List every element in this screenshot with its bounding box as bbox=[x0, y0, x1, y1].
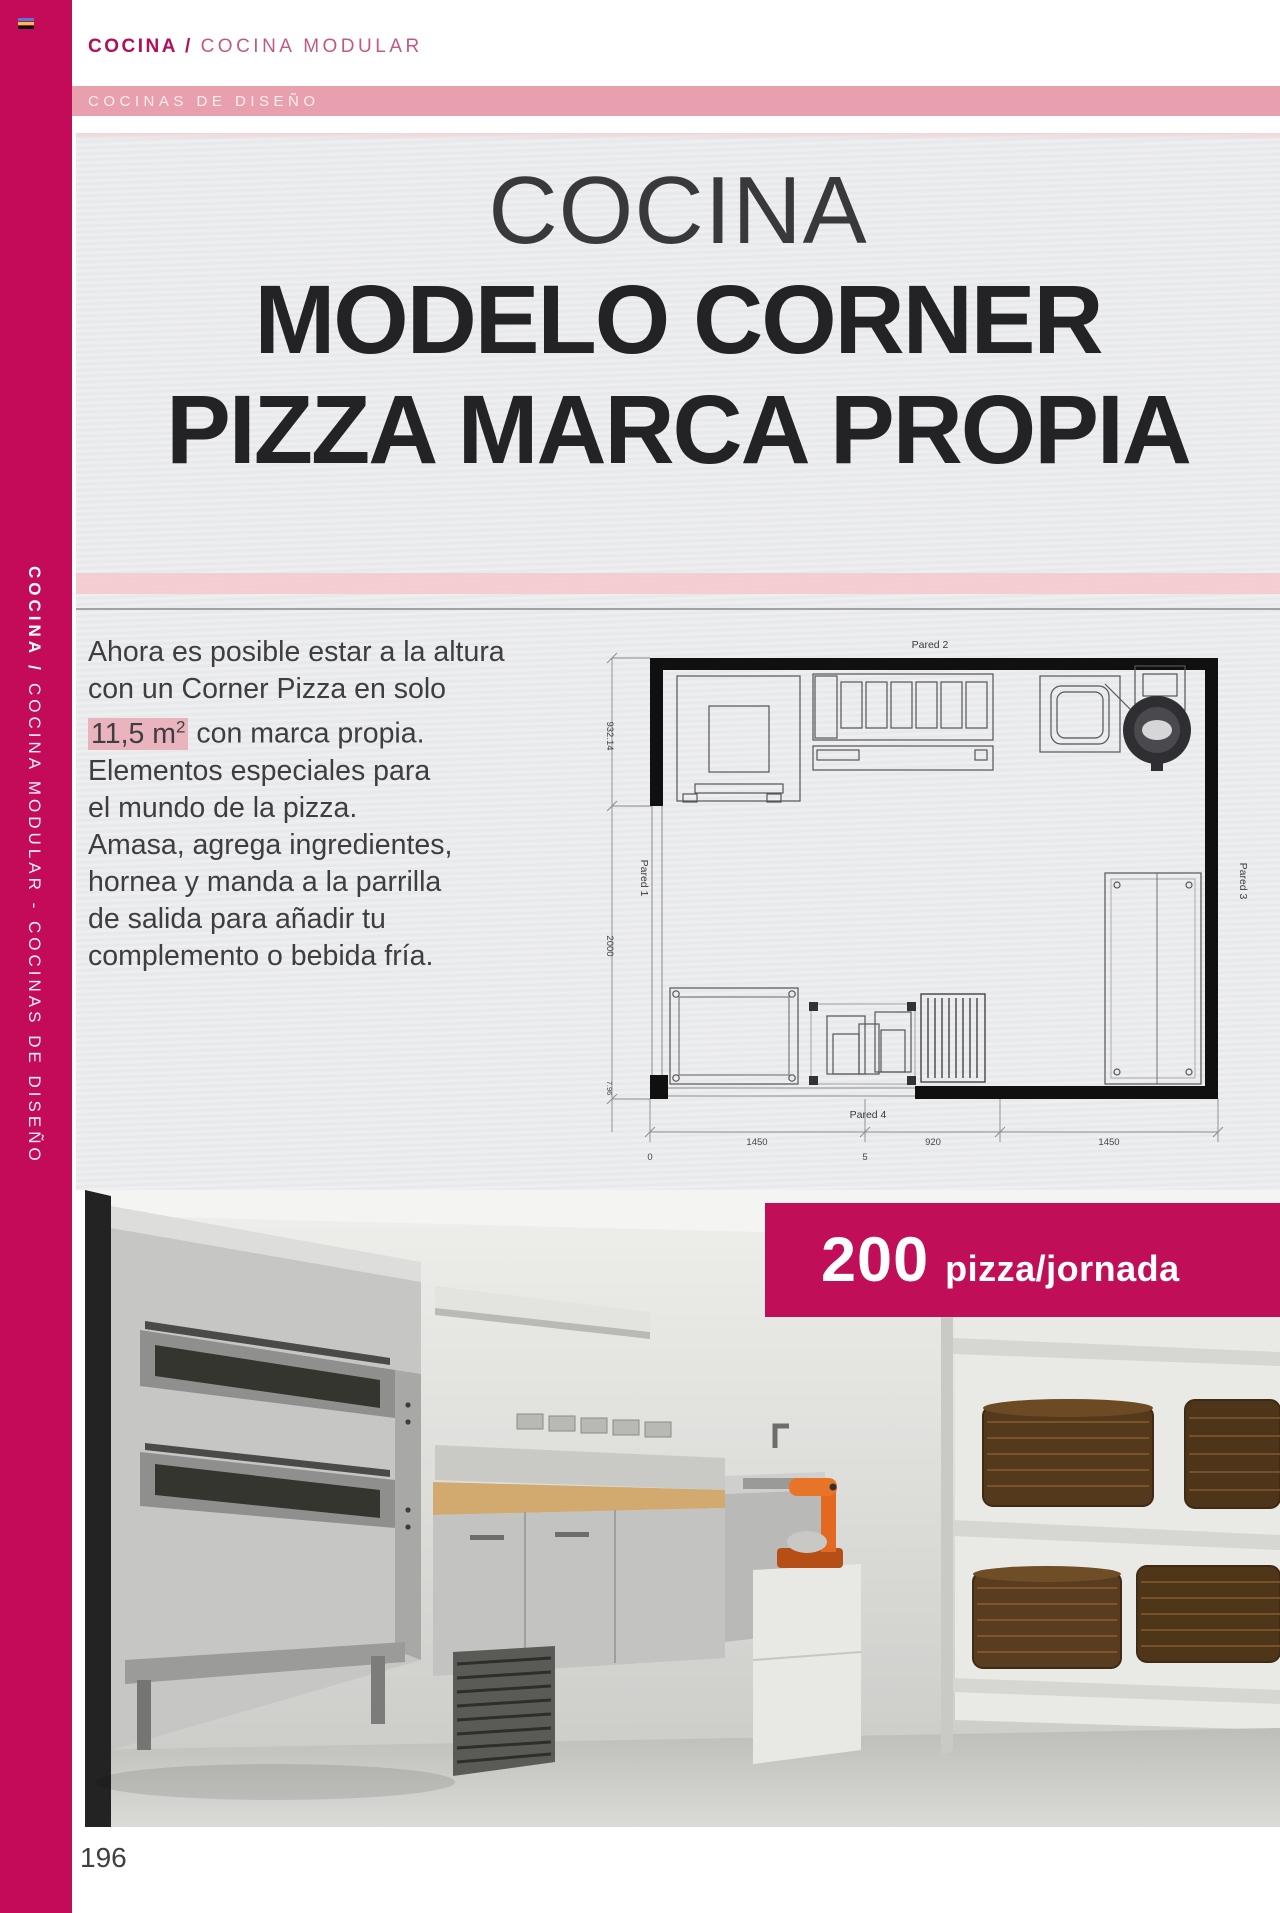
scale-five: 5 bbox=[862, 1152, 867, 1163]
hero-line-3: PIZZA MARCA PROPIA bbox=[76, 375, 1280, 485]
breadcrumb-subsection: COCINA MODULAR bbox=[201, 36, 423, 57]
wall-label-top: Pared 2 bbox=[912, 639, 949, 651]
breadcrumb-section: COCINA / bbox=[88, 36, 201, 57]
dim-bottom-left: 1450 bbox=[746, 1137, 767, 1148]
badge-unit: pizza/jornada bbox=[945, 1248, 1180, 1290]
wicker-basket bbox=[973, 1566, 1121, 1668]
wicker-basket bbox=[983, 1399, 1153, 1506]
intro-line: 11,5 m2 con marca propia. bbox=[88, 708, 518, 753]
menu-icon-bar bbox=[18, 26, 34, 29]
intro-line: Ahora es posible estar a la altura bbox=[88, 634, 518, 671]
intro-line: complemento o bebida fría. bbox=[88, 938, 518, 975]
hero-pink-band bbox=[76, 573, 1280, 594]
intro-line: hornea y manda a la parrilla bbox=[88, 864, 518, 901]
kitchen-render-photo: 200 pizza/jornada bbox=[85, 1190, 1280, 1827]
catalog-page: COCINA / COCINA MODULAR - COCINAS DE DIS… bbox=[0, 0, 1280, 1913]
superscript: 2 bbox=[176, 717, 185, 736]
hero-line-1: COCINA bbox=[76, 157, 1280, 265]
capacity-badge: 200 pizza/jornada bbox=[765, 1203, 1280, 1317]
category-banner-label: COCINAS DE DISEÑO bbox=[72, 86, 1280, 117]
dim-bottom-right: 1450 bbox=[1098, 1137, 1119, 1148]
dim-left-small: 7.96 bbox=[605, 1081, 614, 1096]
left-rail: COCINA / COCINA MODULAR - COCINAS DE DIS… bbox=[0, 0, 72, 1913]
rail-vertical-label-bold: COCINA / bbox=[25, 566, 44, 683]
menu-icon[interactable] bbox=[18, 18, 34, 31]
menu-icon-bar bbox=[18, 22, 34, 25]
wall-label-bottom: Pared 4 bbox=[850, 1109, 887, 1121]
intro-line: Amasa, agrega ingredientes, bbox=[88, 827, 518, 864]
hero-line-2: MODELO CORNER bbox=[76, 265, 1280, 375]
hero-title-panel: COCINA MODELO CORNER PIZZA MARCA PROPIA bbox=[76, 133, 1280, 610]
wall-label-right: Pared 3 bbox=[1237, 863, 1249, 900]
breadcrumb: COCINA / COCINA MODULAR bbox=[88, 36, 423, 58]
rail-vertical-label: COCINA / COCINA MODULAR - COCINAS DE DIS… bbox=[24, 566, 44, 1164]
rail-vertical-label-rest: COCINA MODULAR - COCINAS DE DISEÑO bbox=[25, 683, 44, 1165]
wicker-basket bbox=[1137, 1566, 1280, 1662]
dim-bottom-center: 920 bbox=[925, 1137, 941, 1148]
floor-plan: Pared 2 Pared 1 Pared 3 Pared 4 932.14 2… bbox=[545, 626, 1255, 1171]
badge-value: 200 bbox=[821, 1203, 929, 1317]
vent-grille bbox=[453, 1646, 555, 1776]
intro-line: con un Corner Pizza en solo bbox=[88, 671, 518, 708]
scale-zero: 0 bbox=[647, 1152, 652, 1163]
intro-paragraph: Ahora es posible estar a la altura con u… bbox=[88, 634, 518, 975]
dim-left-bottom: 2000 bbox=[604, 935, 615, 956]
category-banner: COCINAS DE DISEÑO bbox=[72, 86, 1280, 116]
intro-line: el mundo de la pizza. bbox=[88, 790, 518, 827]
menu-icon-bar bbox=[18, 18, 34, 21]
wicker-basket bbox=[1185, 1400, 1280, 1508]
wall-label-left: Pared 1 bbox=[638, 860, 650, 897]
intro-line: Elementos especiales para bbox=[88, 753, 518, 790]
metal-panel: COCINA MODELO CORNER PIZZA MARCA PROPIA … bbox=[76, 133, 1280, 1190]
plan-mixer bbox=[1123, 696, 1191, 771]
plan-rack bbox=[921, 994, 985, 1082]
page-number: 196 bbox=[80, 1842, 127, 1874]
area-highlight: 11,5 m2 bbox=[88, 718, 188, 750]
intro-line: de salida para añadir tu bbox=[88, 901, 518, 938]
left-wall-edge bbox=[85, 1190, 111, 1827]
dim-left-top: 932.14 bbox=[604, 721, 615, 750]
metal-body: Ahora es posible estar a la altura con u… bbox=[76, 610, 1280, 1188]
